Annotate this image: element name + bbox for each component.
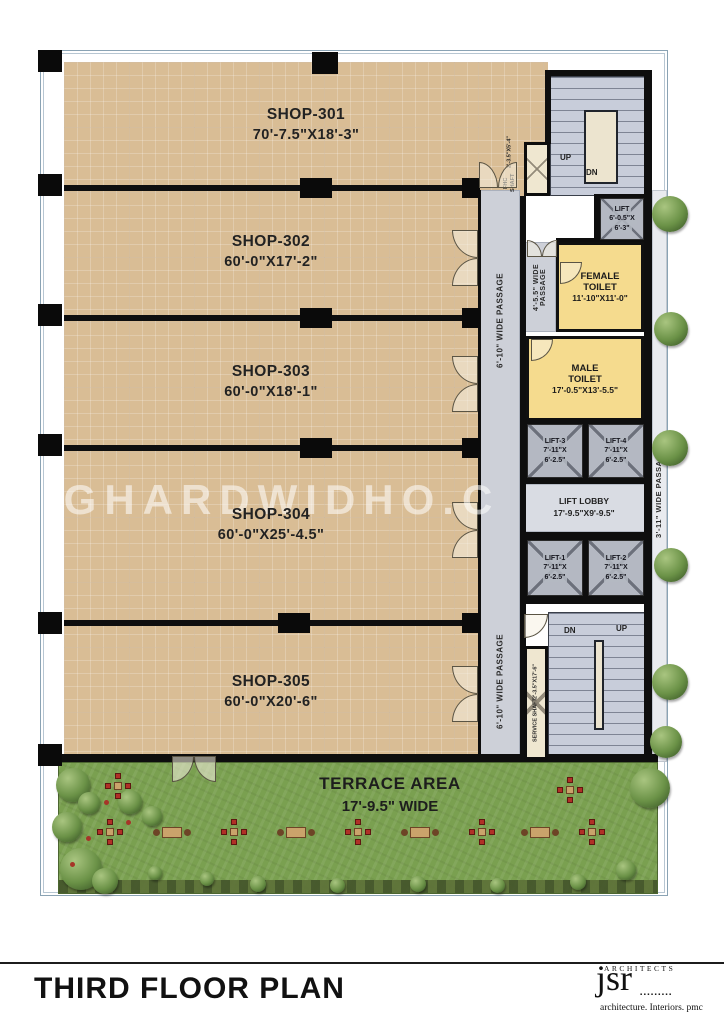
table: [286, 827, 306, 838]
column: [300, 438, 332, 458]
column: [462, 613, 480, 633]
chair: [184, 829, 191, 836]
chair: [567, 777, 573, 783]
logo-dots: ▪▪▪▪▪▪▪▪▪: [640, 992, 673, 998]
chair: [97, 829, 103, 835]
chair: [115, 793, 121, 799]
tree: [652, 196, 688, 232]
tree: [616, 860, 636, 880]
chair: [308, 829, 315, 836]
tree: [330, 878, 345, 893]
wall-304-305: [64, 620, 478, 626]
chair: [489, 829, 495, 835]
flower: [104, 800, 109, 805]
page-title: THIRD FLOOR PLAN: [34, 972, 345, 1006]
chair: [599, 829, 605, 835]
chair: [115, 773, 121, 779]
lift-1: LIFT-1 7'-11"X 6'-2.5": [527, 540, 583, 596]
table: [588, 828, 596, 836]
tree: [490, 878, 505, 893]
flower: [86, 836, 91, 841]
chair: [105, 783, 111, 789]
main-passage-lower-label: 6'-10" WIDE PASSAGE: [482, 606, 518, 756]
tree: [652, 430, 688, 466]
chair: [125, 783, 131, 789]
tree: [570, 874, 586, 890]
tree: [78, 792, 100, 814]
tree: [52, 812, 82, 842]
chair: [107, 819, 113, 825]
chair: [557, 787, 563, 793]
column: [38, 174, 62, 196]
chair: [521, 829, 528, 836]
table: [114, 782, 122, 790]
chair: [579, 829, 585, 835]
logo-name: jsr: [596, 960, 632, 996]
fhc-shaft: [524, 142, 550, 196]
tree: [142, 806, 162, 826]
wall-303-304: [64, 445, 478, 451]
chair: [552, 829, 559, 836]
column: [300, 178, 332, 198]
chair: [479, 819, 485, 825]
chair: [589, 839, 595, 845]
tree: [652, 664, 688, 700]
main-passage-upper-label: 6'-10" WIDE PASSAGE: [482, 240, 518, 400]
shop-305-label: SHOP-305 60'-0"X20'-6": [64, 672, 478, 712]
flower: [70, 862, 75, 867]
chair: [365, 829, 371, 835]
column: [300, 308, 332, 328]
table: [530, 827, 550, 838]
tree: [92, 868, 118, 894]
chair: [153, 829, 160, 836]
tree: [200, 872, 214, 886]
table: [354, 828, 362, 836]
tree: [654, 312, 688, 346]
column: [278, 613, 310, 633]
chair: [567, 797, 573, 803]
chair: [401, 829, 408, 836]
chair: [589, 819, 595, 825]
wall-terrace: [58, 754, 658, 762]
chair: [231, 839, 237, 845]
chair: [355, 839, 361, 845]
tree: [118, 790, 142, 814]
column: [462, 178, 480, 198]
column: [38, 304, 62, 326]
architect-logo: ARCHITECTS jsr ▪▪▪▪▪▪▪▪▪ architecture. I…: [586, 958, 718, 1018]
tree: [650, 726, 682, 758]
column: [312, 52, 338, 74]
female-toilet: FEMALE TOILET 11'-10"X11'-0": [556, 242, 644, 332]
lift-top: LIFT 6'-0.5"X 6'-3": [600, 198, 644, 240]
chair: [577, 787, 583, 793]
table: [230, 828, 238, 836]
stair-top-up-label: UP: [560, 153, 571, 162]
chair: [241, 829, 247, 835]
service-shaft-label: SERVICE SHAFT 2'-3.5"X17'-6": [524, 650, 548, 756]
table: [106, 828, 114, 836]
wall-301-302: [64, 185, 478, 191]
terrace-hedge: [59, 880, 657, 893]
chair: [231, 819, 237, 825]
chair: [432, 829, 439, 836]
shop-303-label: SHOP-303 60'-0"X18'-1": [64, 362, 478, 402]
column: [462, 438, 480, 458]
lift-3: LIFT-3 7'-11"X 6'-2.5": [527, 424, 583, 478]
shop-301-label: SHOP-301 70'-7.5"X18'-3": [64, 105, 548, 145]
stair-divider-bottom: [594, 640, 604, 730]
chair: [277, 829, 284, 836]
chair: [469, 829, 475, 835]
chair: [479, 839, 485, 845]
column: [38, 612, 62, 634]
wall-302-303: [64, 315, 478, 321]
chair: [355, 819, 361, 825]
column: [38, 50, 62, 72]
table: [410, 827, 430, 838]
table: [478, 828, 486, 836]
stair-top-dn-label: DN: [586, 168, 598, 177]
tree: [410, 876, 426, 892]
table: [566, 786, 574, 794]
chair: [221, 829, 227, 835]
tree: [250, 876, 266, 892]
column: [38, 744, 62, 766]
stair-bottom-up-label: UP: [616, 624, 627, 633]
table: [162, 827, 182, 838]
lift-4: LIFT-4 7'-11"X 6'-2.5": [588, 424, 644, 478]
flower: [126, 820, 131, 825]
tree: [654, 548, 688, 582]
tree: [630, 768, 670, 808]
chair: [117, 829, 123, 835]
logo-tagline: architecture. Interiors. pmc: [600, 1003, 703, 1013]
shop-304-label: SHOP-304 60'-0"X25'-4.5": [64, 505, 478, 545]
shop-302-label: SHOP-302 60'-0"X17'-2": [64, 232, 478, 272]
chair: [107, 839, 113, 845]
stair-bottom-dn-label: DN: [564, 626, 576, 635]
tree: [148, 866, 162, 880]
lift-2: LIFT-2 7'-11"X 6'-2.5": [588, 540, 644, 596]
wall-stair-top: [545, 70, 652, 76]
column: [38, 434, 62, 456]
chair: [345, 829, 351, 835]
shop-area-block: [64, 62, 478, 762]
column: [462, 308, 480, 328]
